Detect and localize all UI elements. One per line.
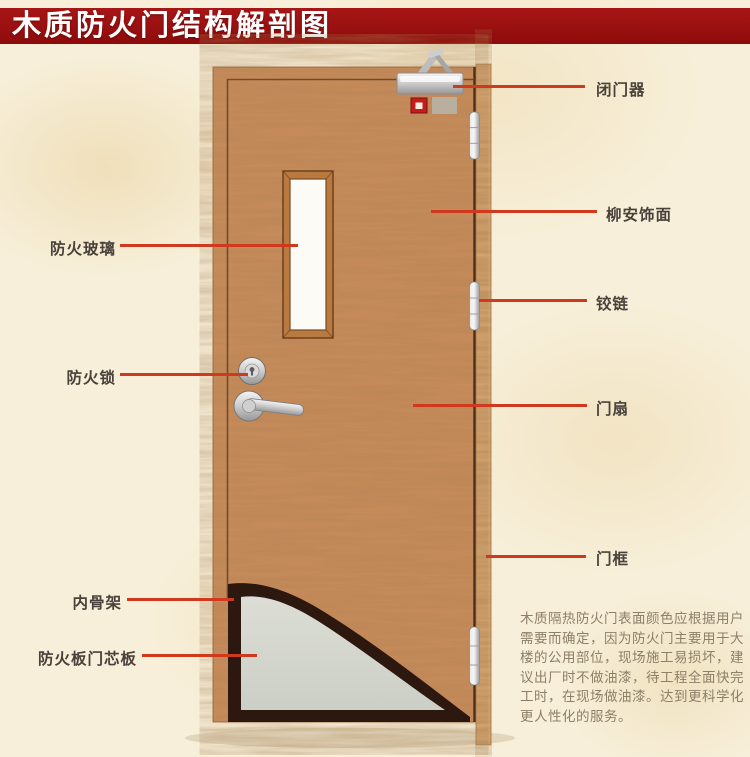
hinge-middle bbox=[470, 282, 480, 330]
leader-line-door-closer bbox=[453, 85, 585, 88]
label-door-closer: 闭门器 bbox=[596, 78, 646, 100]
leader-line-fire-board-core bbox=[142, 654, 257, 657]
description-line: 木质隔热防火门表面颜色应根据用户 bbox=[520, 609, 748, 629]
leader-line-door-leaf bbox=[413, 404, 587, 407]
glass-pane bbox=[290, 179, 326, 330]
hinge-top bbox=[470, 112, 480, 159]
closer-label-plate bbox=[432, 97, 457, 114]
fire-lock-cylinder bbox=[239, 358, 266, 385]
hinge-bottom bbox=[470, 627, 480, 685]
fire-glass-window bbox=[283, 171, 333, 338]
leader-line-door-frame bbox=[486, 555, 586, 558]
leader-line-lauan-veneer bbox=[431, 210, 597, 213]
label-hinge: 铰链 bbox=[596, 292, 629, 314]
leader-line-inner-skeleton bbox=[127, 598, 234, 601]
label-fire-lock: 防火锁 bbox=[0, 366, 116, 388]
leader-line-hinge bbox=[479, 299, 587, 302]
leader-line-fire-lock bbox=[120, 373, 248, 376]
door-shadow bbox=[185, 728, 515, 748]
label-lauan-veneer: 柳安饰面 bbox=[606, 203, 672, 225]
description-line: 需要而确定，因为防火门主要用于大 bbox=[520, 629, 748, 649]
label-fire-board-core: 防火板门芯板 bbox=[0, 647, 137, 669]
label-inner-skeleton: 内骨架 bbox=[0, 591, 122, 613]
description-line: 议出厂时不做油漆，待工程全面快完 bbox=[520, 668, 748, 688]
label-door-leaf: 门扇 bbox=[596, 397, 629, 419]
description-line: 楼的公用部位，现场施工易损坏，建 bbox=[520, 648, 748, 668]
description-line: 工时，在现场做油漆。达到更科学化 bbox=[520, 687, 748, 707]
leader-line-fire-glass bbox=[120, 244, 298, 247]
description-paragraph: 木质隔热防火门表面颜色应根据用户 需要而确定，因为防火门主要用于大 楼的公用部位… bbox=[520, 609, 748, 727]
door-gap-line bbox=[473, 67, 475, 722]
label-door-frame: 门框 bbox=[596, 547, 629, 569]
label-fire-glass: 防火玻璃 bbox=[0, 237, 116, 259]
description-line: 更人性化的服务。 bbox=[520, 707, 748, 727]
infographic-canvas: 木质防火门结构解剖图 bbox=[0, 0, 750, 757]
